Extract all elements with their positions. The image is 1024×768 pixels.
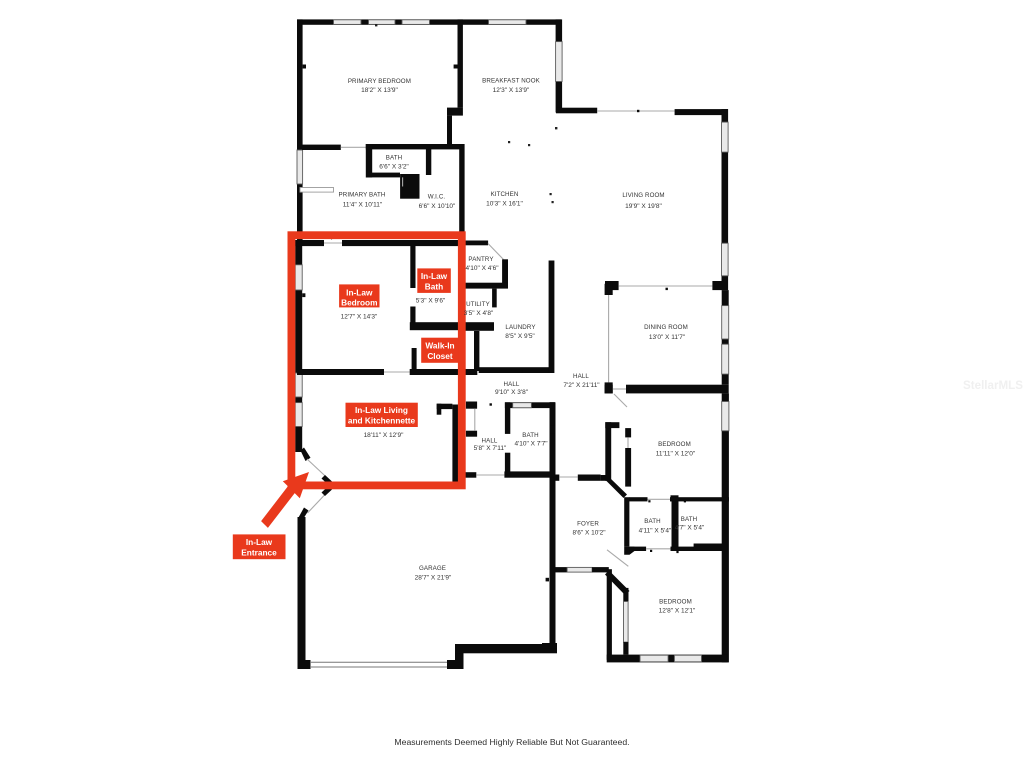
svg-text:UTILITY: UTILITY [466,301,490,308]
svg-text:In-Law: In-Law [246,537,273,547]
svg-text:11'4" X 10'11": 11'4" X 10'11" [343,201,383,208]
svg-text:12'7" X 14'3": 12'7" X 14'3" [341,314,378,321]
svg-text:6'6" X 10'10": 6'6" X 10'10" [419,203,456,210]
svg-text:BEDROOM: BEDROOM [658,441,691,448]
svg-text:PRIMARY BEDROOM: PRIMARY BEDROOM [348,78,411,85]
svg-text:BATH: BATH [386,155,402,162]
svg-text:PRIMARY BATH: PRIMARY BATH [339,192,386,199]
svg-text:6'6" X 3'2": 6'6" X 3'2" [379,163,409,170]
svg-text:BATH: BATH [644,518,660,525]
svg-text:and Kitchennette: and Kitchennette [348,416,416,426]
svg-text:HALL: HALL [504,381,520,388]
svg-text:10'3" X 16'1": 10'3" X 16'1" [486,200,523,207]
svg-text:8'5" X 9'5": 8'5" X 9'5" [505,333,535,340]
svg-text:Measurements Deemed Highly Rel: Measurements Deemed Highly Reliable But … [394,737,629,747]
svg-text:W.I.C.: W.I.C. [428,194,446,201]
svg-text:3'5" X 4'8": 3'5" X 4'8" [464,310,494,317]
svg-text:12'3" X 13'9": 12'3" X 13'9" [493,87,530,94]
svg-text:GARAGE: GARAGE [419,565,446,572]
svg-text:StellarMLS: StellarMLS [963,379,1023,392]
svg-text:7'2" X 21'11": 7'2" X 21'11" [563,382,600,389]
svg-text:DINING ROOM: DINING ROOM [644,324,688,331]
svg-text:KITCHEN: KITCHEN [491,191,519,198]
svg-text:BREAKFAST NOOK: BREAKFAST NOOK [482,77,540,84]
svg-text:BATH: BATH [522,432,538,439]
svg-text:11'11" X 12'0": 11'11" X 12'0" [656,450,696,457]
svg-text:HALL: HALL [482,437,498,444]
svg-text:18'11" X 12'9": 18'11" X 12'9" [364,432,405,439]
svg-text:4'10" X 7'7": 4'10" X 7'7" [514,441,548,448]
svg-text:9'10" X 3'8": 9'10" X 3'8" [495,389,529,396]
svg-text:12'8" X 12'1": 12'8" X 12'1" [659,608,696,615]
svg-text:Walk-In: Walk-In [425,341,454,351]
svg-text:Closet: Closet [427,351,453,361]
svg-text:LIVING ROOM: LIVING ROOM [622,192,664,199]
svg-text:5'3" X 9'6": 5'3" X 9'6" [416,298,446,305]
svg-text:In-Law: In-Law [421,271,448,281]
svg-text:Entrance: Entrance [241,548,277,558]
svg-text:BATH: BATH [681,516,697,523]
svg-text:In-Law: In-Law [346,287,373,297]
svg-text:4'11" X 5'4": 4'11" X 5'4" [639,528,672,535]
svg-text:In-Law Living: In-Law Living [355,405,408,415]
svg-text:BEDROOM: BEDROOM [659,599,692,606]
svg-text:PANTRY: PANTRY [468,256,493,263]
svg-text:FOYER: FOYER [577,520,599,527]
svg-text:HALL: HALL [573,373,589,380]
svg-text:4'7" X 5'4": 4'7" X 5'4" [675,525,705,532]
svg-text:19'9" X 19'8": 19'9" X 19'8" [625,203,662,210]
svg-text:8'6" X 10'2": 8'6" X 10'2" [572,530,606,537]
svg-text:28'7" X 21'9": 28'7" X 21'9" [415,575,452,582]
svg-text:LAUNDRY: LAUNDRY [505,324,535,331]
svg-text:5'8" X 7'11": 5'8" X 7'11" [474,445,507,452]
svg-text:13'0" X 11'7": 13'0" X 11'7" [649,334,686,341]
svg-text:Bath: Bath [425,282,443,292]
svg-text:18'2" X 13'9": 18'2" X 13'9" [361,87,398,94]
svg-text:Bedroom: Bedroom [341,297,377,307]
svg-text:4'10" X 4'6": 4'10" X 4'6" [465,265,499,272]
